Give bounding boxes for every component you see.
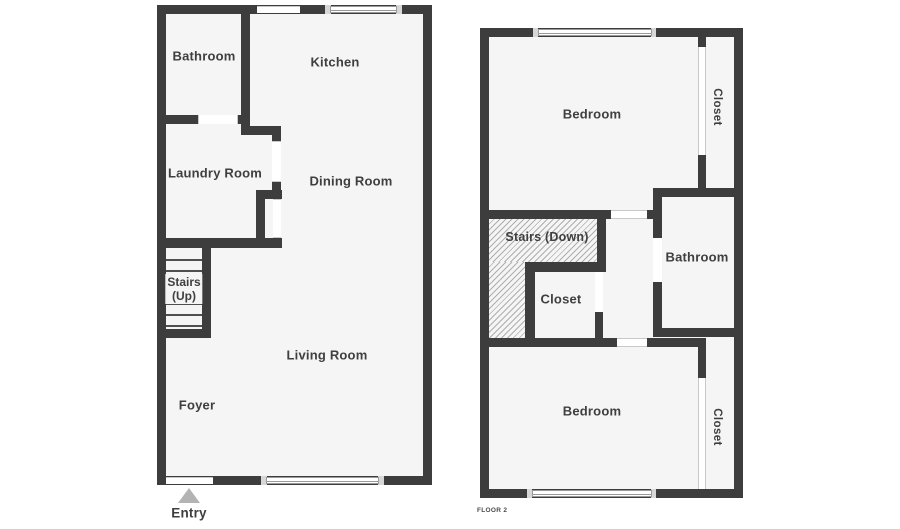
door-opening [272, 141, 281, 182]
closet-opening [698, 47, 706, 155]
entry-arrow-icon [178, 488, 200, 503]
wall-segment [480, 210, 611, 219]
wall-segment [653, 188, 743, 197]
room-label-laundry: Laundry Room [168, 166, 262, 181]
door-opening [653, 238, 662, 282]
room-label-dining: Dining Room [309, 174, 392, 189]
room-label-kitchen: Kitchen [310, 55, 359, 70]
wall-segment [698, 338, 706, 378]
door-opening [617, 338, 647, 347]
entry-label: Entry [171, 506, 207, 521]
entry-door-opening [166, 477, 213, 484]
wall-segment [525, 262, 535, 338]
wall-opening [257, 6, 300, 13]
room-label-foyer: Foyer [179, 398, 215, 413]
room-label-closet-bottom: Closet [711, 408, 723, 446]
wall-segment [480, 338, 617, 347]
room-label-living: Living Room [287, 348, 368, 363]
wall-segment [647, 210, 662, 219]
wall-segment [480, 28, 489, 498]
room-label-bedroom-bottom: Bedroom [563, 404, 621, 419]
room-label-stairs-up: Stairs (Up) [165, 274, 202, 304]
window-pane-line [533, 494, 651, 495]
window [538, 29, 652, 36]
window-pane-line [331, 10, 396, 11]
wall-segment [157, 238, 282, 248]
window [266, 477, 379, 484]
stairs-up-line1: Stairs [167, 275, 200, 289]
wall-segment [653, 328, 743, 337]
stairs-up-line2: (Up) [167, 289, 200, 303]
window-pane-line [539, 33, 651, 34]
stairs-hatch-area [489, 262, 525, 338]
wall-segment [595, 312, 603, 338]
wall-segment [157, 329, 211, 338]
room-label-bathroom-2: Bathroom [666, 250, 729, 265]
window [330, 6, 397, 13]
room-label-bedroom-top: Bedroom [563, 107, 621, 122]
window [532, 490, 652, 497]
wall-segment [423, 5, 432, 485]
closet-opening [273, 199, 281, 238]
wall-segment [202, 248, 211, 338]
door-opening [611, 210, 647, 219]
door-opening [198, 115, 238, 124]
floorplan-canvas: Bathroom Kitchen Laundry Room Dining Roo… [0, 0, 900, 529]
room-label-closet-top: Closet [711, 88, 723, 126]
wall-segment [597, 210, 606, 263]
wall-segment [525, 262, 606, 272]
room-label-closet-mid: Closet [541, 292, 582, 307]
room-label-stairs-down: Stairs (Down) [505, 230, 588, 244]
door-opening [595, 272, 603, 312]
room-label-bathroom: Bathroom [173, 49, 236, 64]
wall-segment [734, 28, 743, 498]
window-pane-line [267, 481, 378, 482]
wall-segment [241, 126, 281, 135]
floor-2-tag: FLOOR 2 [477, 507, 507, 514]
closet-opening [698, 378, 706, 489]
